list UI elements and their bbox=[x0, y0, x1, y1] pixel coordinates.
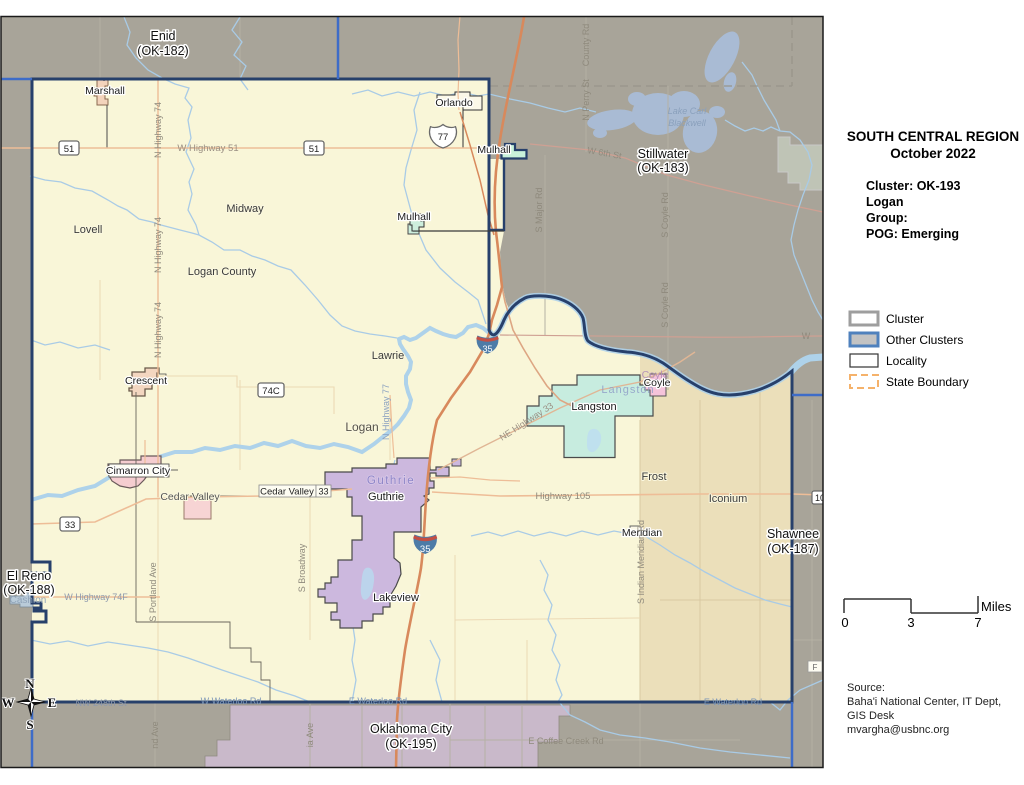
svg-text:N Perry St: N Perry St bbox=[581, 79, 591, 121]
svg-text:77: 77 bbox=[438, 132, 449, 143]
svg-text:W Highway 74F: W Highway 74F bbox=[64, 592, 128, 602]
svg-text:Cluster: Cluster bbox=[886, 312, 924, 326]
svg-text:NW 248th St: NW 248th St bbox=[75, 698, 127, 708]
svg-text:Source:: Source: bbox=[847, 682, 885, 694]
svg-text:Guthrie: Guthrie bbox=[367, 475, 415, 487]
svg-text:W Waterloo Rd: W Waterloo Rd bbox=[201, 696, 262, 706]
svg-text:ia Ave: ia Ave bbox=[305, 723, 315, 747]
svg-text:Lawrie: Lawrie bbox=[372, 350, 404, 362]
svg-text:Shawnee: Shawnee bbox=[767, 527, 819, 541]
svg-text:Langston: Langston bbox=[571, 401, 616, 413]
svg-text:SOUTH CENTRAL REGION: SOUTH CENTRAL REGION bbox=[847, 129, 1019, 144]
svg-text:Lakeview: Lakeview bbox=[373, 592, 419, 604]
svg-text:N Highway 74: N Highway 74 bbox=[153, 217, 163, 273]
svg-text:Cimarron City: Cimarron City bbox=[106, 465, 171, 477]
svg-text:Baha'i National Center, IT Dep: Baha'i National Center, IT Dept, bbox=[847, 696, 1001, 708]
svg-text:Other Clusters: Other Clusters bbox=[886, 333, 963, 347]
svg-text:S: S bbox=[26, 717, 33, 732]
svg-text:(OK-183): (OK-183) bbox=[637, 161, 688, 175]
svg-text:N Highway 74: N Highway 74 bbox=[153, 302, 163, 358]
svg-text:74C: 74C bbox=[262, 386, 280, 397]
svg-text:Logan: Logan bbox=[866, 195, 904, 209]
svg-text:Cedar Valley: Cedar Valley bbox=[160, 491, 220, 503]
svg-text:Crescent: Crescent bbox=[125, 375, 167, 387]
svg-text:(OK-187): (OK-187) bbox=[767, 542, 818, 556]
svg-text:F: F bbox=[813, 663, 818, 672]
svg-text:S Major Rd: S Major Rd bbox=[534, 187, 544, 232]
svg-text:Iconium: Iconium bbox=[709, 493, 748, 505]
svg-text:Locality: Locality bbox=[886, 354, 927, 368]
svg-text:35: 35 bbox=[420, 544, 431, 555]
svg-text:33: 33 bbox=[65, 520, 76, 531]
svg-text:51: 51 bbox=[64, 144, 75, 155]
svg-text:Guthrie: Guthrie bbox=[368, 491, 404, 503]
svg-text:0: 0 bbox=[841, 615, 848, 630]
svg-text:(OK-182): (OK-182) bbox=[137, 44, 188, 58]
svg-text:(OK-195): (OK-195) bbox=[385, 737, 436, 751]
svg-text:GIS Desk: GIS Desk bbox=[847, 710, 895, 722]
svg-text:Lake Carl: Lake Carl bbox=[668, 106, 708, 116]
svg-text:Cedar Valley: Cedar Valley bbox=[260, 487, 314, 498]
svg-text:51: 51 bbox=[309, 144, 320, 155]
svg-text:Enid: Enid bbox=[150, 29, 175, 43]
svg-text:Lovell: Lovell bbox=[74, 224, 103, 236]
svg-text:N Highway 77: N Highway 77 bbox=[381, 384, 391, 440]
svg-text:Stillwater: Stillwater bbox=[638, 147, 689, 161]
svg-text:Cashion: Cashion bbox=[10, 595, 47, 606]
svg-text:Coyle: Coyle bbox=[642, 369, 669, 381]
svg-text:E Waterloo Rd: E Waterloo Rd bbox=[704, 697, 762, 707]
svg-text:Mulhall: Mulhall bbox=[397, 211, 430, 223]
svg-text:Miles: Miles bbox=[981, 599, 1012, 614]
svg-text:mvargha@usbnc.org: mvargha@usbnc.org bbox=[847, 724, 949, 736]
svg-text:Blackwell: Blackwell bbox=[668, 118, 707, 128]
svg-text:7: 7 bbox=[974, 615, 981, 630]
svg-text:N: N bbox=[25, 676, 35, 691]
svg-text:October 2022: October 2022 bbox=[890, 146, 976, 161]
svg-text:Highway 105: Highway 105 bbox=[536, 491, 591, 502]
svg-text:W: W bbox=[802, 331, 811, 341]
svg-text:E Waterloo Rd: E Waterloo Rd bbox=[349, 696, 407, 706]
svg-text:S Portland Ave: S Portland Ave bbox=[148, 562, 158, 621]
svg-text:3: 3 bbox=[907, 615, 914, 630]
svg-text:State Boundary: State Boundary bbox=[886, 375, 969, 389]
svg-text:W Highway 51: W Highway 51 bbox=[177, 143, 238, 154]
svg-text:El Reno: El Reno bbox=[7, 569, 52, 583]
svg-text:Langston: Langston bbox=[601, 384, 654, 396]
svg-text:Logan: Logan bbox=[345, 420, 378, 434]
svg-text:S Broadway: S Broadway bbox=[297, 543, 307, 592]
svg-text:Mulhall: Mulhall bbox=[477, 144, 510, 156]
svg-text:W: W bbox=[2, 695, 15, 710]
svg-text:POG: Emerging: POG: Emerging bbox=[866, 227, 959, 241]
svg-text:Group:: Group: bbox=[866, 211, 908, 225]
svg-text:S Coyle Rd: S Coyle Rd bbox=[660, 192, 670, 238]
svg-text:S Indian Meridian Rd: S Indian Meridian Rd bbox=[636, 520, 646, 604]
svg-text:Oklahoma City: Oklahoma City bbox=[370, 722, 453, 736]
svg-text:Midway: Midway bbox=[226, 203, 264, 215]
svg-text:E: E bbox=[48, 695, 57, 710]
svg-text:S Coyle Rd: S Coyle Rd bbox=[660, 282, 670, 328]
svg-text:County Rd: County Rd bbox=[581, 24, 591, 67]
svg-text:E Coffee Creek Rd: E Coffee Creek Rd bbox=[528, 736, 603, 746]
svg-text:Logan County: Logan County bbox=[188, 266, 257, 278]
svg-text:Orlando: Orlando bbox=[435, 97, 473, 109]
svg-text:Cluster: OK-193: Cluster: OK-193 bbox=[866, 179, 961, 193]
svg-text:Frost: Frost bbox=[641, 471, 666, 483]
svg-text:33: 33 bbox=[318, 487, 328, 497]
svg-text:nd Ave: nd Ave bbox=[150, 721, 160, 748]
svg-text:Marshall: Marshall bbox=[85, 85, 125, 97]
svg-text:N Highway 74: N Highway 74 bbox=[153, 102, 163, 158]
svg-text:35: 35 bbox=[482, 344, 492, 354]
